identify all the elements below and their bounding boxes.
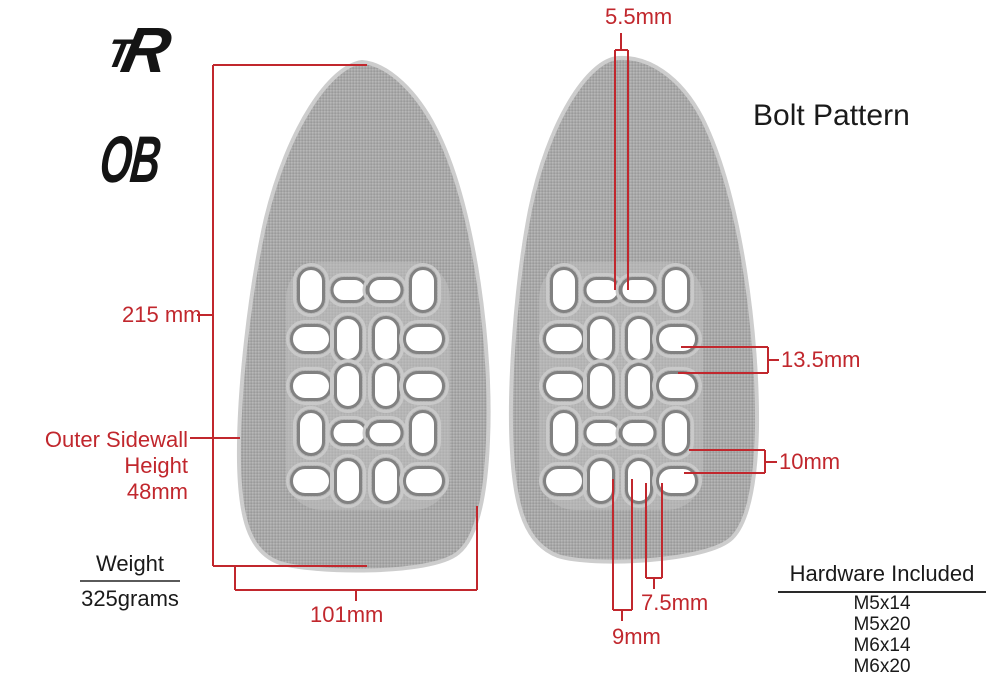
- weight-value: 325grams: [80, 582, 180, 612]
- right-pedal-illustration: [511, 58, 757, 562]
- dim-width-label: 101mm: [310, 603, 383, 627]
- dim-bolt-top-label: 5.5mm: [605, 5, 672, 29]
- hardware-item: M6x20: [778, 656, 986, 677]
- dim-sidewall-label: Outer Sidewall Height 48mm: [38, 427, 188, 505]
- dim-bolt-right-upper-label: 13.5mm: [781, 348, 860, 372]
- bolt-pattern-title: Bolt Pattern: [753, 99, 910, 133]
- dim-bolt-bottom-inner-label: 9mm: [612, 625, 661, 649]
- dim-sidewall-line2: Height: [38, 453, 188, 479]
- spec-sheet: T R OB 215 mm Outer Sidewall Height 48mm…: [0, 0, 1000, 700]
- hardware-item: M5x20: [778, 614, 986, 635]
- weight-block: Weight 325grams: [80, 551, 180, 612]
- dim-sidewall-line1: Outer Sidewall: [38, 427, 188, 453]
- hardware-item: M5x14: [778, 593, 986, 614]
- hardware-item: M6x14: [778, 635, 986, 656]
- left-pedal-illustration: [239, 62, 489, 571]
- dim-bolt-bottom-outer-label: 7.5mm: [641, 591, 708, 615]
- dim-bolt-right-lower-label: 10mm: [779, 450, 840, 474]
- hardware-block: Hardware Included M5x14 M5x20 M6x14 M6x2…: [778, 561, 986, 677]
- hardware-title: Hardware Included: [778, 561, 986, 593]
- weight-title: Weight: [80, 551, 180, 582]
- dim-length-label: 215 mm: [122, 303, 201, 327]
- model-name: OB: [97, 126, 163, 192]
- dim-sidewall-line3: 48mm: [38, 479, 188, 505]
